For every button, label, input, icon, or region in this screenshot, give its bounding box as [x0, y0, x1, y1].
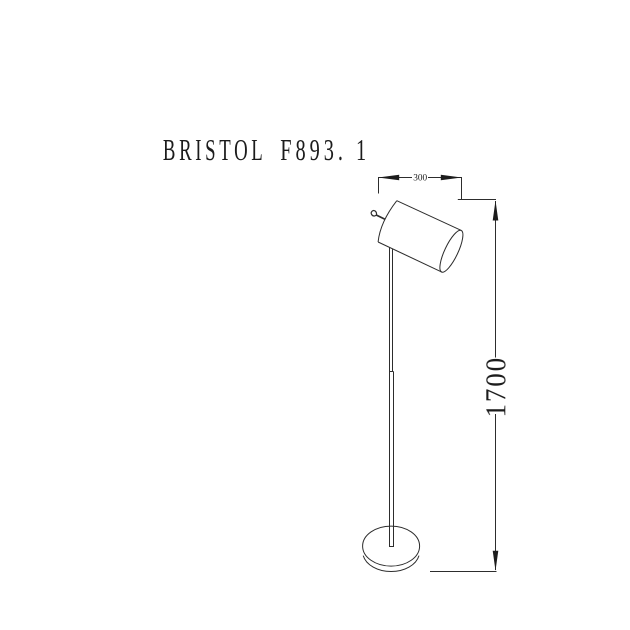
svg-text:300: 300	[413, 172, 427, 183]
svg-text:F893. 1: F893. 1	[280, 133, 370, 167]
svg-text:BRISTOL: BRISTOL	[163, 132, 267, 167]
svg-text:1700: 1700	[480, 356, 512, 418]
